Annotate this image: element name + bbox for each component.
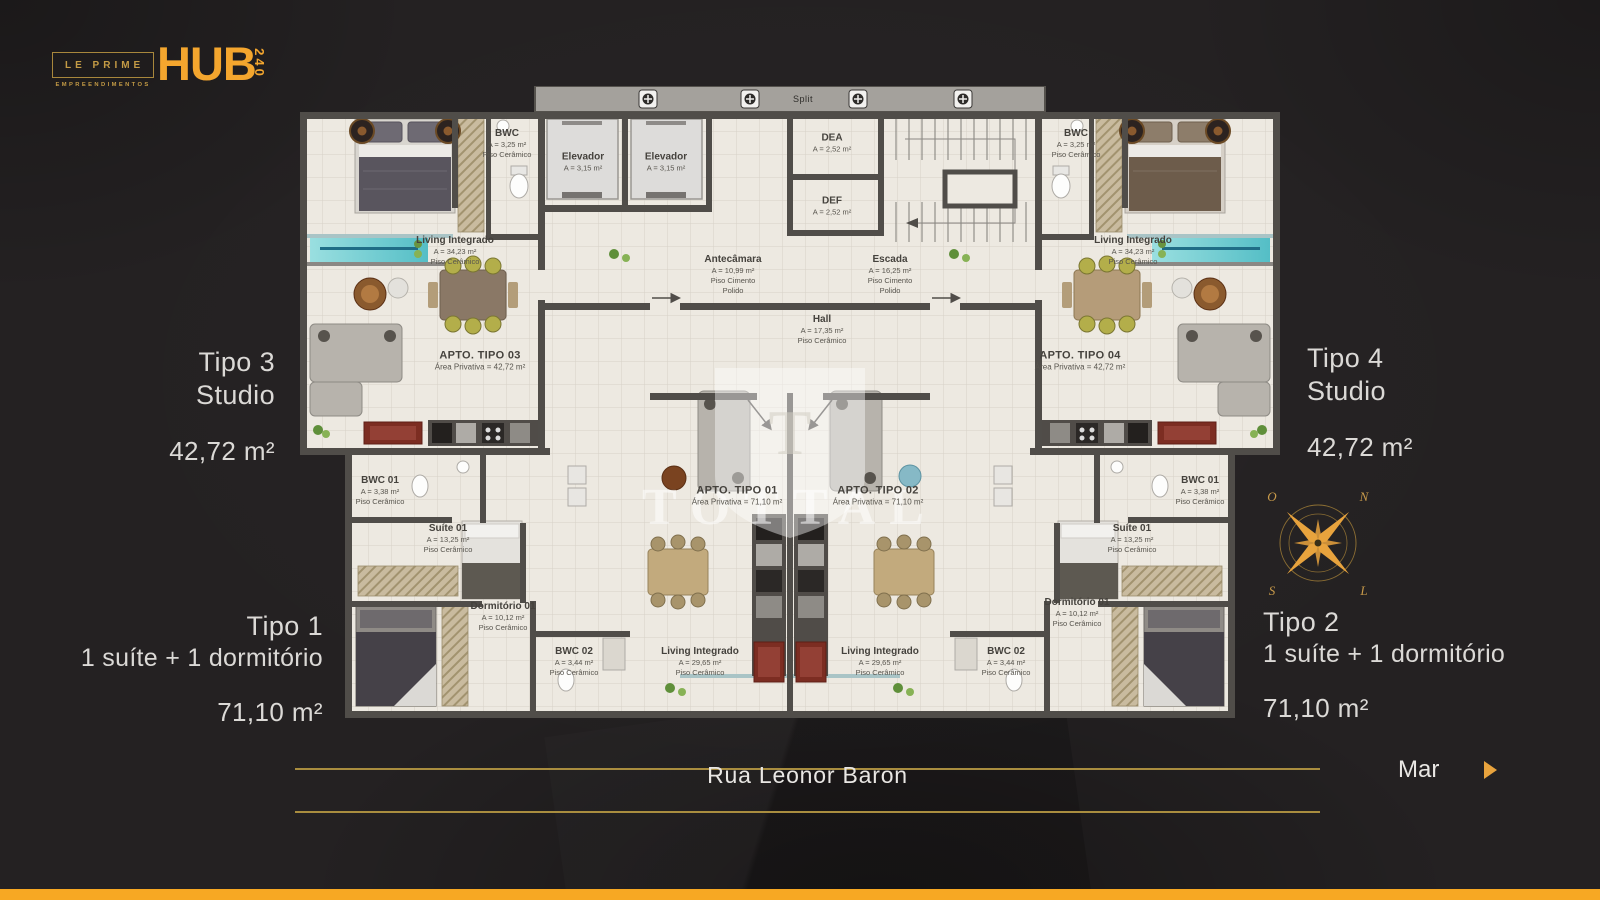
floorplan-poster: LE PRIME EMPREENDIMENTOS HUB 240: [0, 0, 1600, 900]
unit-label-tipo4: Tipo 4 Studio 42,72 m²: [1307, 342, 1413, 464]
kitchen-top-right: [1040, 420, 1216, 446]
tipo1-area: 71,10 m²: [40, 697, 323, 729]
compass-west: O: [1267, 489, 1277, 504]
tipo4-title: Tipo 4: [1307, 342, 1413, 375]
tipo1-title: Tipo 1: [40, 610, 323, 643]
leprime-subtitle: EMPREENDIMENTOS: [52, 82, 154, 88]
tipo1-subtitle: 1 suíte + 1 dormitório: [40, 643, 323, 674]
sea-arrow-icon: [1484, 761, 1497, 779]
tipo3-title: Tipo 3: [60, 346, 275, 379]
floor-plan: T TOTTAL Split BWCA = 3,25 m²Piso Cerâmi…: [300, 86, 1280, 718]
tipo2-title: Tipo 2: [1263, 606, 1505, 639]
leprime-name: LE PRIME: [52, 52, 154, 78]
unit-label-tipo2: Tipo 2 1 suíte + 1 dormitório 71,10 m²: [1263, 606, 1505, 725]
hub-wordmark: HUB: [157, 40, 256, 87]
tipo4-area: 42,72 m²: [1307, 432, 1413, 464]
watermark-text: TOTTAL: [642, 479, 938, 536]
leprime-logo: LE PRIME EMPREENDIMENTOS: [52, 52, 154, 88]
kitchen-bottom-left: [752, 514, 786, 682]
kitchen-bottom-right: [794, 514, 828, 682]
tipo4-subtitle: Studio: [1307, 375, 1413, 408]
bed-suite-right: [1058, 521, 1118, 599]
bottom-accent-bar: [0, 889, 1600, 900]
unit-label-tipo3: Tipo 3 Studio 42,72 m²: [60, 346, 275, 468]
unit-label-tipo1: Tipo 1 1 suíte + 1 dormitório 71,10 m²: [40, 610, 323, 729]
floor-plan-graphic: T TOTTAL: [300, 86, 1280, 718]
dining-bottom-right: [874, 535, 934, 609]
street-line-bottom: [295, 811, 1320, 813]
compass-rose-icon: O N S L: [1252, 477, 1384, 609]
bed-suite-left: [462, 521, 522, 599]
bed-dorm-left: [356, 606, 436, 706]
compass-east: L: [1359, 583, 1367, 598]
hub-number: 240: [252, 48, 267, 79]
compass-south: S: [1269, 583, 1276, 598]
bed-dorm-right: [1144, 606, 1224, 706]
tipo2-area: 71,10 m²: [1263, 693, 1505, 725]
compass-north: N: [1359, 489, 1370, 504]
dining-bottom-left: [648, 535, 708, 609]
tipo3-area: 42,72 m²: [60, 436, 275, 468]
svg-text:T: T: [769, 397, 812, 468]
tipo3-subtitle: Studio: [60, 379, 275, 412]
hub240-logo: HUB 240: [157, 40, 256, 87]
street-name: Rua Leonor Baron: [295, 762, 1320, 789]
kitchen-top-left: [364, 420, 540, 446]
sea-label: Mar: [1398, 756, 1439, 784]
tipo2-subtitle: 1 suíte + 1 dormitório: [1263, 639, 1505, 670]
